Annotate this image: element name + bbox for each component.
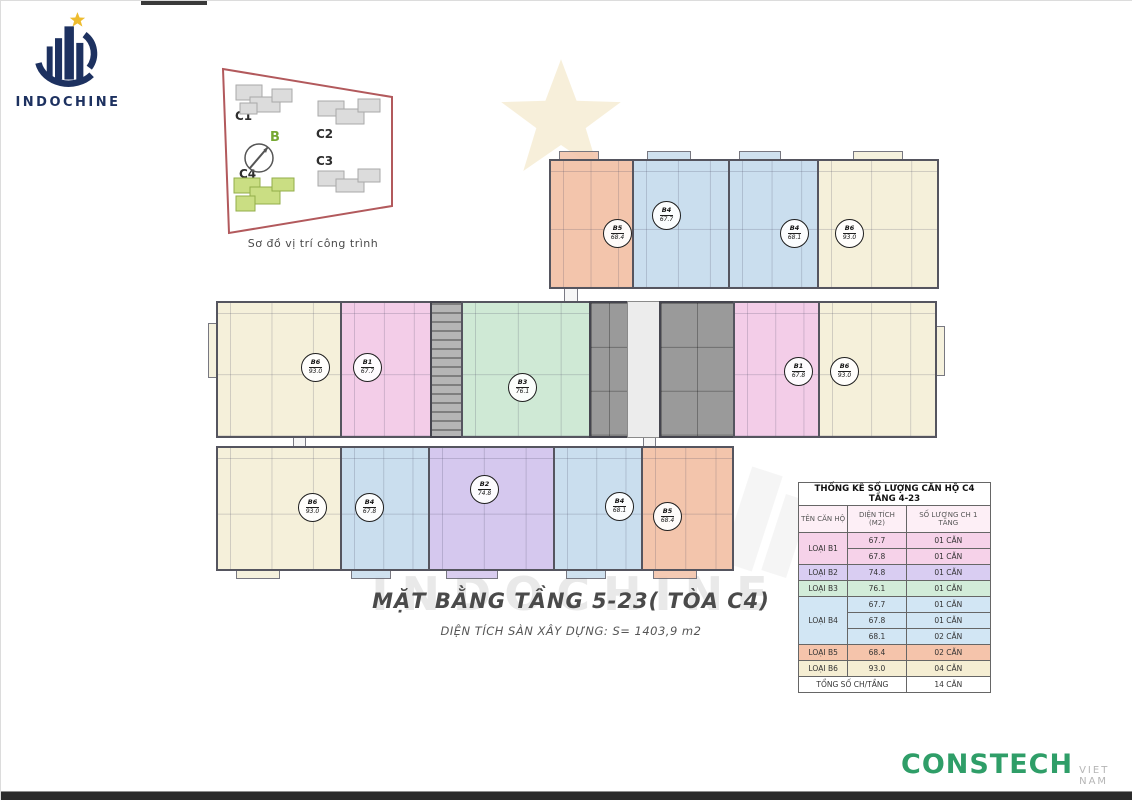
table-title-row: THỐNG KÊ SỐ LƯỢNG CĂN HỘ C4 TẦNG 4-23 [799,483,991,506]
unit-badge: B693.0 [835,219,864,248]
unit-badge: B693.0 [301,353,330,382]
total-value: 14 CĂN [906,677,990,693]
unit-b6-mid-left: B693.0 [216,301,342,438]
stairwell [430,301,463,438]
compass-icon [245,144,273,172]
elevator-core [659,301,735,438]
constech-text: CONSTECH [901,749,1073,780]
unit-b6-bottom-left: B693.0 [216,446,342,571]
unit-b4-bottom-left: B467.8 [340,446,430,571]
cell-type: LOẠI B2 [799,565,848,581]
cell-type: LOẠI B6 [799,661,848,677]
cell-area: 74.8 [848,565,906,581]
cell-count: 04 CĂN [906,661,990,677]
unit-badge: B167.7 [353,353,382,382]
indochine-logo: INDOCHINE [13,11,123,110]
location-diagram [206,56,406,246]
total-label: TỔNG SỐ CH/TẦNG [799,677,907,693]
unit-b6-mid-right: B693.0 [818,301,937,438]
cell-type: LOẠI B3 [799,581,848,597]
table-title: THỐNG KÊ SỐ LƯỢNG CĂN HỘ C4 TẦNG 4-23 [799,483,991,506]
cell-count: 01 CĂN [906,565,990,581]
table-row: LOẠI B5 68.4 02 CĂN [799,645,991,661]
cell-area: 68.4 [848,645,906,661]
cell-type: LOẠI B4 [799,597,848,645]
col-header-name: TÊN CĂN HỘ [799,506,848,533]
table-row: LOẠI B2 74.8 01 CĂN [799,565,991,581]
unit-b3-center: B376.1 [461,301,591,438]
unit-b4-bottom-right: B468.1 [553,446,643,571]
bottom-bar [1,791,1132,800]
cell-count: 02 CĂN [906,645,990,661]
plan-subtitle: DIỆN TÍCH SÀN XÂY DỰNG: S= 1403,9 m2 [331,624,811,638]
unit-badge: B167.8 [784,357,813,386]
cell-area: 67.7 [848,597,906,613]
unit-b4-top-left: B467.7 [632,159,730,289]
lobby-core [627,301,661,438]
cell-area: 67.8 [848,549,906,565]
unit-b6-top-right: B693.0 [817,159,939,289]
unit-b5-bottom: B568.4 [641,446,734,571]
building-cluster-c1 [236,85,292,114]
building-cluster-c4-highlighted [234,178,294,211]
unit-b4-top-right: B468.1 [728,159,819,289]
building-cluster-c3 [318,169,380,192]
unit-badge: B693.0 [830,357,859,386]
unit-badge: B693.0 [298,493,327,522]
cell-area: 93.0 [848,661,906,677]
cell-count: 01 CĂN [906,597,990,613]
cell-count: 01 CĂN [906,549,990,565]
table-total-row: TỔNG SỐ CH/TẦNG 14 CĂN [799,677,991,693]
plan-title: MẶT BẰNG TẦNG 5-23( TÒA C4) [331,589,811,613]
elevator-core [589,301,629,438]
indochine-building-icon [30,11,106,89]
unit-badge: B274.8 [470,475,499,504]
vietnam-text: VIET NAM [1079,765,1111,787]
unit-b2-bottom-center: B274.8 [428,446,555,571]
unit-badge: B568.4 [653,502,682,531]
unit-b1-mid-right: B167.8 [733,301,820,438]
cell-type: LOẠI B5 [799,645,848,661]
unit-badge: B468.1 [605,492,634,521]
cell-count: 01 CĂN [906,581,990,597]
table-row: LOẠI B6 93.0 04 CĂN [799,661,991,677]
cell-area: 76.1 [848,581,906,597]
unit-badge: B467.8 [355,493,384,522]
col-header-count: SỐ LƯỢNG CH 1 TẦNG [906,506,990,533]
cell-area: 68.1 [848,629,906,645]
cell-type: LOẠI B1 [799,533,848,565]
col-header-area: DIỆN TÍCH (M2) [848,506,906,533]
cell-count: 01 CĂN [906,613,990,629]
page: INDOCHINE C1 C2 C3 C4 [0,0,1132,800]
unit-badge: B468.1 [780,219,809,248]
cell-count: 02 CĂN [906,629,990,645]
indochine-logo-text: INDOCHINE [13,95,123,110]
stats-table: THỐNG KÊ SỐ LƯỢNG CĂN HỘ C4 TẦNG 4-23 TÊ… [798,482,991,693]
unit-badge: B568.4 [603,219,632,248]
cell-area: 67.8 [848,613,906,629]
cell-area: 67.7 [848,533,906,549]
building-cluster-c2 [318,99,380,124]
cell-count: 01 CĂN [906,533,990,549]
table-row: LOẠI B4 67.7 01 CĂN [799,597,991,613]
unit-b1-mid-left: B167.7 [340,301,432,438]
table-header-row: TÊN CĂN HỘ DIỆN TÍCH (M2) SỐ LƯỢNG CH 1 … [799,506,991,533]
unit-badge: B376.1 [508,373,537,402]
scan-artifact [141,1,207,5]
unit-badge: B467.7 [652,201,681,230]
table-row: LOẠI B1 67.7 01 CĂN [799,533,991,549]
table-row: LOẠI B3 76.1 01 CĂN [799,581,991,597]
unit-b5-top: B568.4 [549,159,634,289]
constech-logo: CONSTECH VIET NAM [901,749,1111,787]
